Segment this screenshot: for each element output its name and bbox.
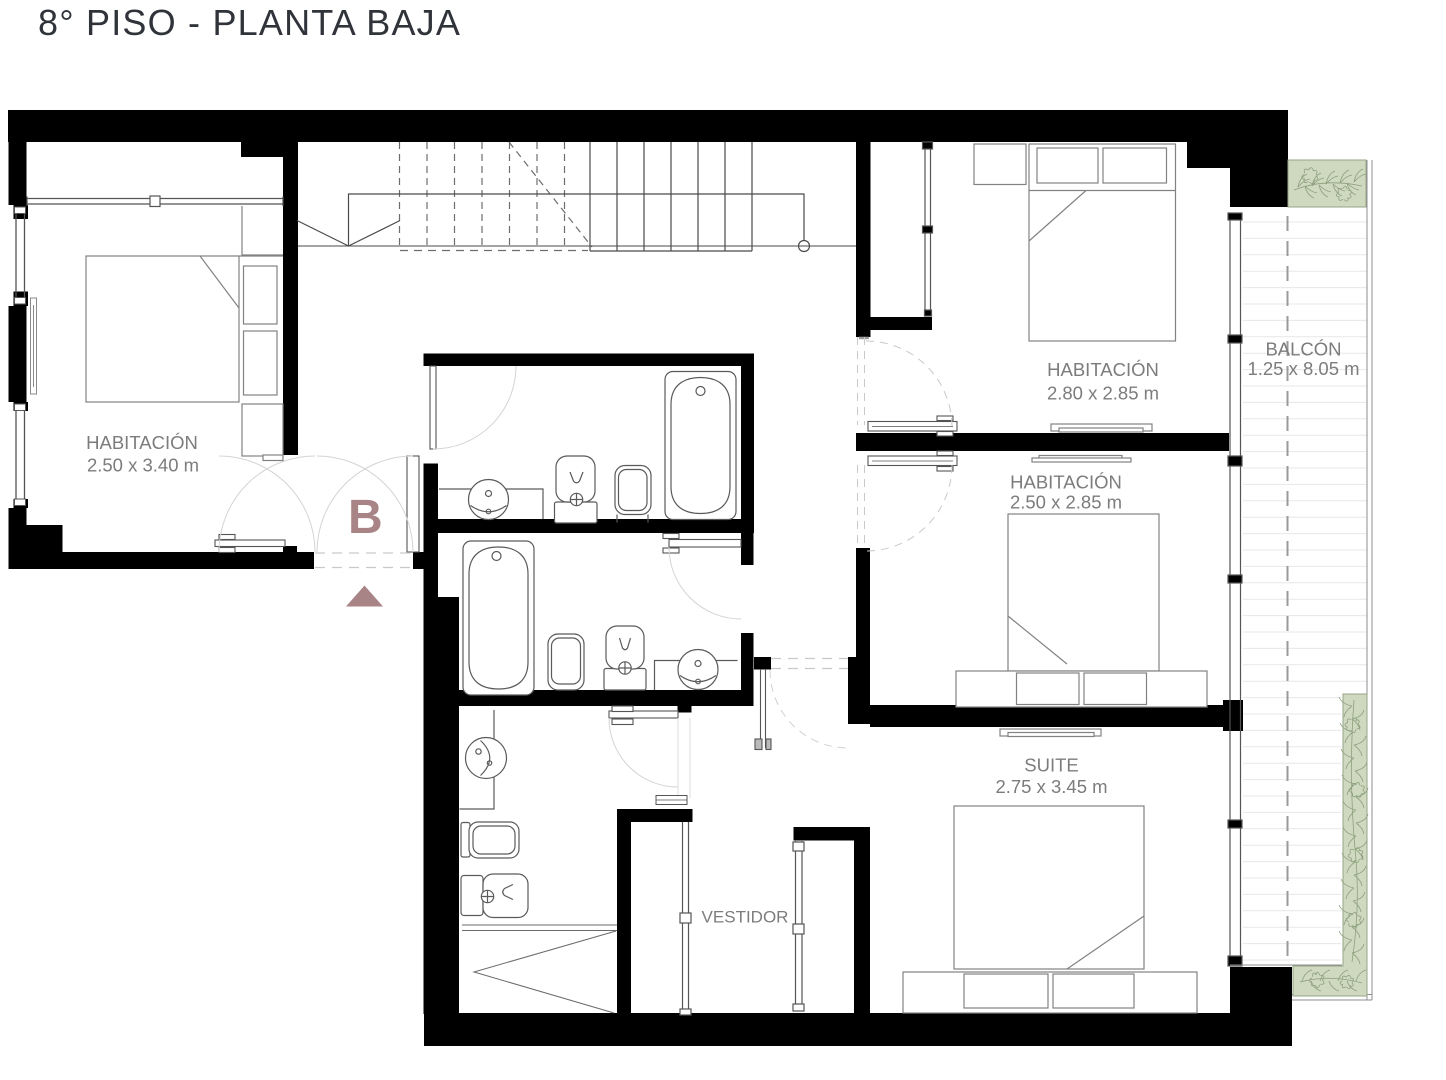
- svg-text:1.25 x 8.05 m: 1.25 x 8.05 m: [1247, 358, 1359, 379]
- svg-text:SUITE: SUITE: [1024, 755, 1078, 776]
- svg-text:B: B: [348, 491, 383, 544]
- svg-text:VESTIDOR: VESTIDOR: [702, 908, 789, 927]
- svg-text:2.50 x 3.40 m: 2.50 x 3.40 m: [87, 455, 199, 476]
- svg-text:HABITACIÓN: HABITACIÓN: [1047, 359, 1159, 380]
- svg-text:2.50 x 2.85 m: 2.50 x 2.85 m: [1010, 492, 1122, 513]
- svg-text:HABITACIÓN: HABITACIÓN: [86, 432, 198, 453]
- svg-text:2.75 x 3.45 m: 2.75 x 3.45 m: [995, 776, 1107, 797]
- svg-text:2.80 x 2.85 m: 2.80 x 2.85 m: [1047, 383, 1159, 404]
- svg-text:BALCÓN: BALCÓN: [1265, 339, 1341, 360]
- svg-text:8° PISO - PLANTA BAJA: 8° PISO - PLANTA BAJA: [38, 2, 461, 43]
- svg-text:HABITACIÓN: HABITACIÓN: [1010, 472, 1122, 493]
